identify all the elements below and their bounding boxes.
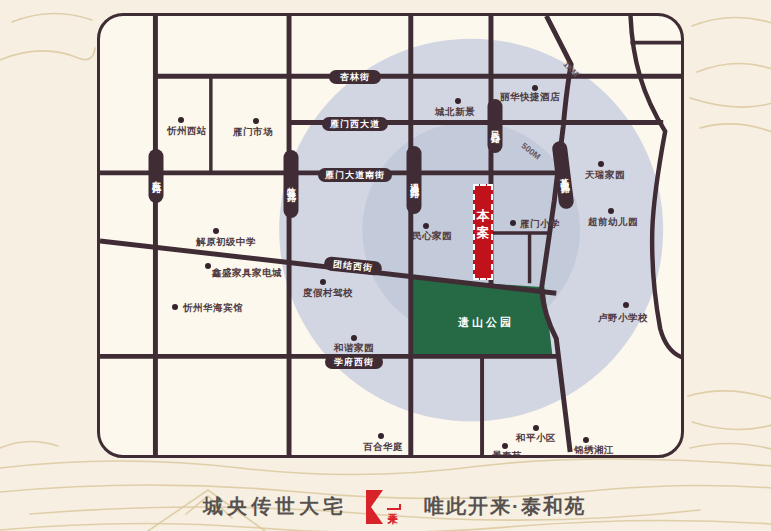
poi-dot: [423, 223, 429, 229]
poi-label: 卢野小学校: [598, 312, 648, 325]
road-name-capsule: 雁门西大道: [322, 117, 388, 131]
poi-dot: [213, 228, 219, 234]
tagline-right: 唯此开来·泰和苑: [424, 493, 587, 520]
poi-label: 度假村驾校: [303, 287, 353, 300]
poi-dot: [510, 220, 516, 226]
site-marker-label: 本案: [477, 198, 490, 230]
poi-label: 锦绣湘江: [574, 444, 614, 457]
poi-dot: [205, 263, 211, 269]
poi-dot: [253, 118, 259, 124]
poi-label: 民心家园: [412, 230, 452, 243]
tagline-left: 城央传世大宅: [203, 493, 347, 520]
road-name-capsule: 学府西街: [325, 355, 383, 369]
promo-page: 1KM500M杏林街雁门西大道雁门大道南街团结西街学府西街东杜路牧马北路遇岗北路…: [0, 0, 771, 531]
poi-dot: [502, 443, 508, 449]
poi-label: 忻州西站: [167, 125, 207, 138]
road-name-capsule: 牧马北路: [284, 150, 299, 218]
poi-dot: [455, 98, 461, 104]
poi-label: 超前幼儿园: [588, 216, 638, 229]
poi-dot: [623, 302, 629, 308]
poi-dot: [172, 304, 178, 310]
kailai-logo: 开来: [366, 489, 401, 525]
poi-label: 天瑞家园: [585, 169, 625, 182]
poi-dot: [320, 279, 326, 285]
location-map: 1KM500M杏林街雁门西大道雁门大道南街团结西街学府西街东杜路牧马北路遇岗北路…: [97, 13, 684, 458]
logo-characters: 开来: [387, 504, 401, 510]
road-name-capsule: 民心路: [488, 99, 503, 153]
poi-dot: [533, 425, 539, 431]
poi-label: 百合华庭: [363, 441, 403, 454]
poi-label: 和平小区: [516, 432, 556, 445]
poi-label: 城北新景: [435, 106, 475, 119]
poi-dot: [583, 437, 589, 443]
ring-distance-label: 500M: [520, 141, 543, 162]
poi-dot: [598, 161, 604, 167]
poi-label: 景泰苑: [492, 450, 522, 459]
road-name-capsule: 东杜路: [149, 149, 164, 203]
poi-label: 和谐家园: [334, 342, 374, 355]
poi-label: 雁门小学: [520, 218, 560, 231]
poi-dot: [178, 117, 184, 123]
road-name-capsule: 团结西街: [323, 256, 382, 276]
road-name-capsule: 遇岗北路: [407, 146, 422, 214]
road-name-capsule: 杏林街: [329, 70, 381, 84]
ring-distance-label: 1KM: [561, 59, 581, 79]
poi-dot: [608, 208, 614, 214]
poi-label: 忻州华海宾馆: [183, 302, 243, 315]
logo-k-icon: [366, 490, 385, 524]
poi-label: 鑫盛家具家电城: [212, 267, 282, 280]
map-label-layer: 1KM500M杏林街雁门西大道雁门大道南街团结西街学府西街东杜路牧马北路遇岗北路…: [100, 16, 681, 455]
poi-label: 解原初级中学: [196, 236, 256, 249]
poi-dot: [351, 335, 357, 341]
poi-dot: [378, 433, 384, 439]
road-name-capsule: 雁门大道南街: [318, 168, 392, 182]
poi-label: 丽华快捷酒店: [500, 91, 560, 104]
road-name-capsule: 慕山北路: [551, 140, 574, 209]
site-marker: 本案: [473, 184, 493, 280]
park-name-label: 遗山公园: [458, 315, 514, 330]
poi-label: 雁门市场: [233, 126, 273, 139]
